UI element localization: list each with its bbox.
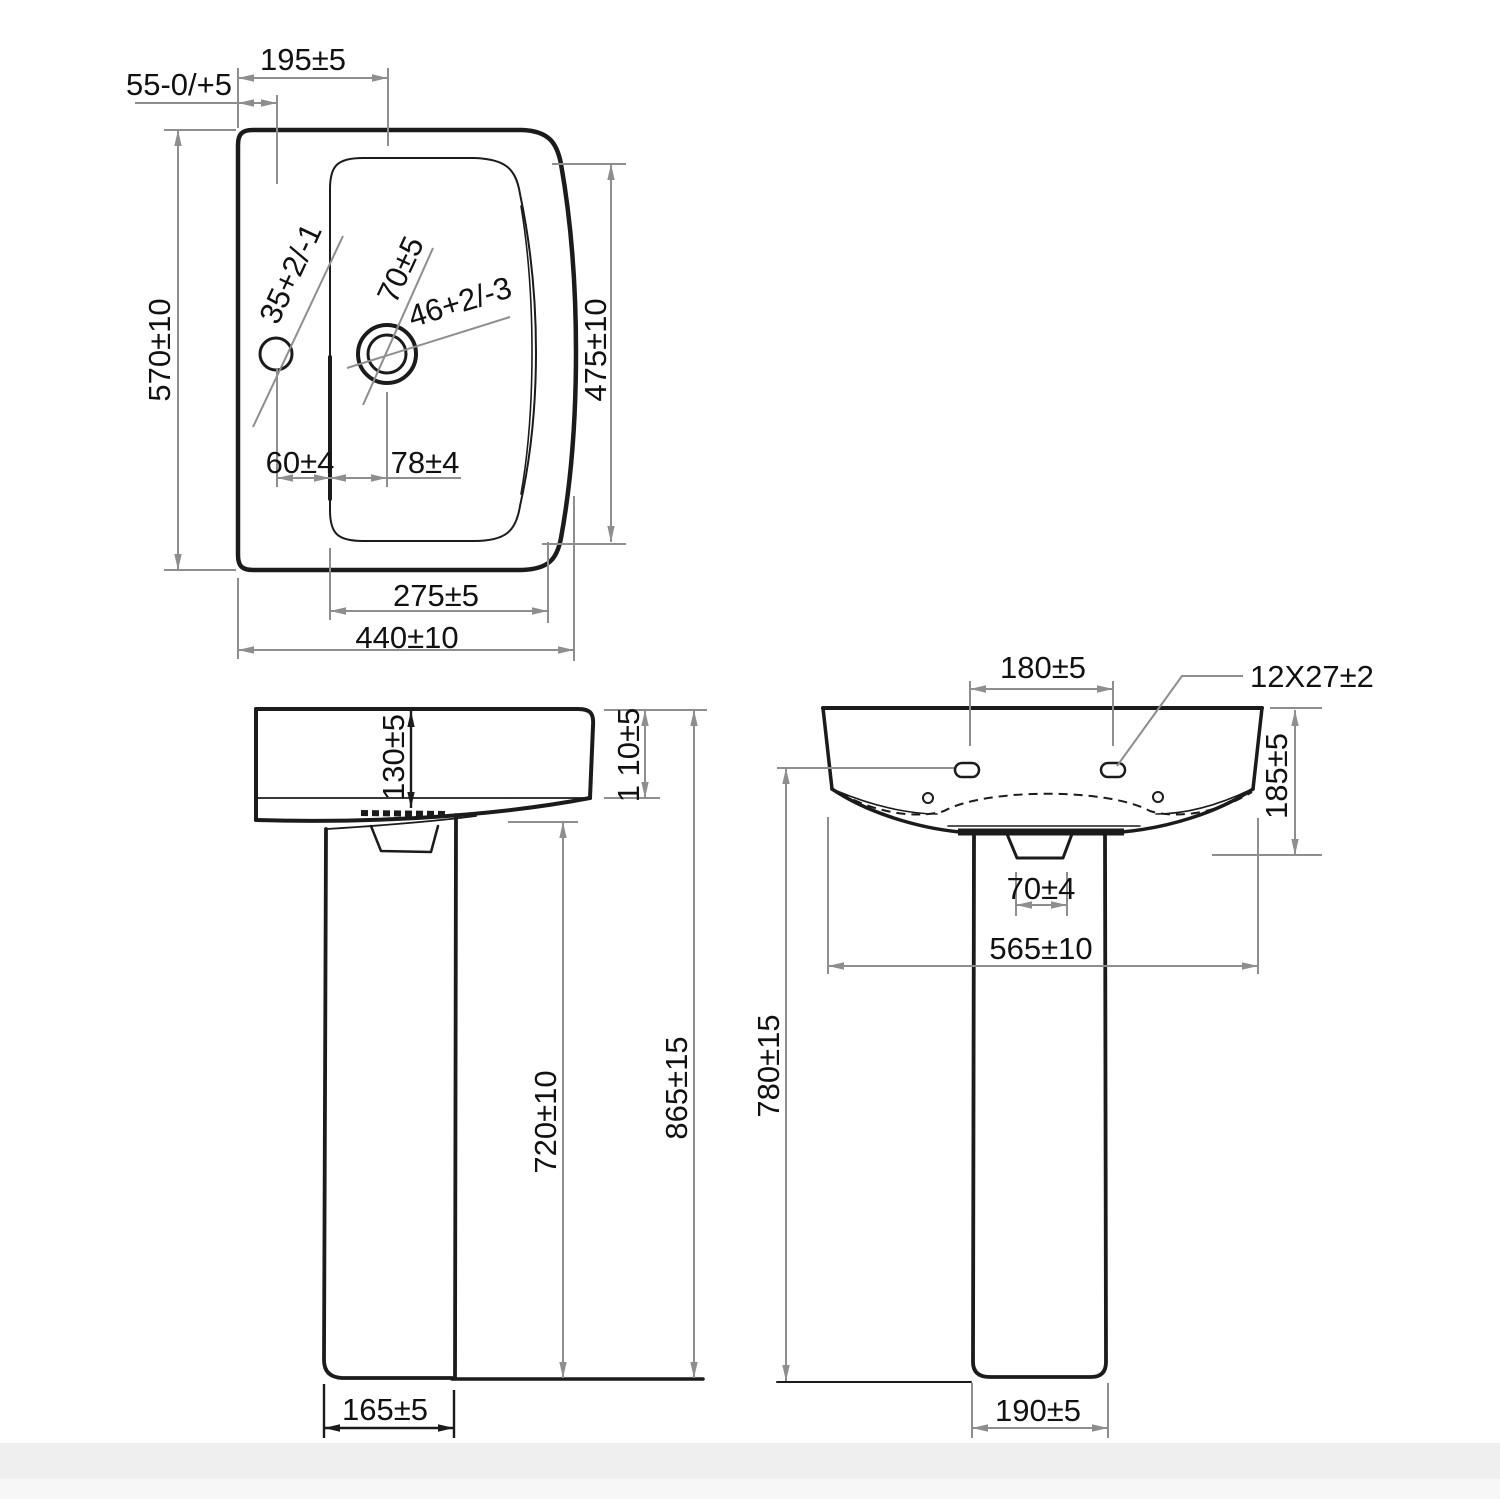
technical-drawing-svg: 195±5 55-0/+5 570±10 475±10 35+2/-1 70±5… (0, 0, 1500, 1499)
bowl-edge-right (1156, 790, 1250, 814)
leader-fixing-hole (1117, 676, 1243, 766)
overflow-hole-left (923, 793, 933, 803)
drain-boss-side (371, 826, 438, 852)
dim-label-440: 440±10 (355, 620, 458, 655)
footer-band-light (0, 1479, 1500, 1499)
dim-label-275: 275±5 (393, 578, 479, 613)
dim-label-46: 46+2/-3 (404, 270, 516, 334)
dim-label-55: 55-0/+5 (126, 67, 232, 102)
basin-side-top (256, 709, 593, 798)
dim-label-78: 78±4 (391, 445, 460, 480)
fixing-slot-left (955, 763, 979, 777)
dim-label-185: 185±5 (1259, 733, 1294, 819)
dim-label-130: 130±5 (376, 714, 411, 800)
front-view: 180±5 12X27±2 185±5 70±4 565±10 780±15 1… (751, 650, 1374, 1438)
dim-label-180: 180±5 (1000, 650, 1086, 685)
technical-drawing-page: 195±5 55-0/+5 570±10 475±10 35+2/-1 70±5… (0, 0, 1500, 1499)
dim-label-12x27: 12X27±2 (1250, 659, 1374, 694)
plan-view: 195±5 55-0/+5 570±10 475±10 35+2/-1 70±5… (126, 42, 626, 661)
dim-label-475: 475±10 (578, 298, 613, 401)
dim-label-780: 780±15 (751, 1014, 786, 1117)
basin-front-slant-left (832, 789, 960, 832)
basin-side-bottom (256, 798, 590, 821)
pedestal-front-outline (973, 834, 1106, 1377)
side-view: 130±5 1 10±5 865±15 720±10 165±5 (256, 708, 707, 1438)
dim-label-70: 70±4 (1007, 871, 1076, 906)
pedestal-side-outline (324, 829, 452, 1378)
basin-inner-rim-plan (330, 158, 536, 541)
dim-label-165: 165±5 (342, 1392, 428, 1427)
overflow-hole-right (1153, 792, 1163, 802)
dim-label-190: 190±5 (995, 1393, 1081, 1428)
dim-label-570: 570±10 (142, 298, 177, 401)
footer-band (0, 1443, 1500, 1479)
dim-label-35: 35+2/-1 (252, 218, 329, 329)
dim-label-720: 720±10 (528, 1070, 563, 1173)
drain-boss-front (1007, 834, 1072, 858)
dim-label-110: 1 10±5 (611, 708, 646, 803)
dim-label-60: 60±4 (266, 445, 335, 480)
fixing-slot-right (1101, 763, 1125, 777)
drain-hole-inner (368, 335, 406, 373)
basin-front-left (823, 708, 832, 789)
dim-label-865: 865±15 (659, 1036, 694, 1139)
drain-flange-edge (361, 813, 445, 814)
pedestal-side-right (455, 815, 456, 1378)
dim-label-565: 565±10 (989, 931, 1092, 966)
dim-label-195: 195±5 (260, 42, 346, 77)
